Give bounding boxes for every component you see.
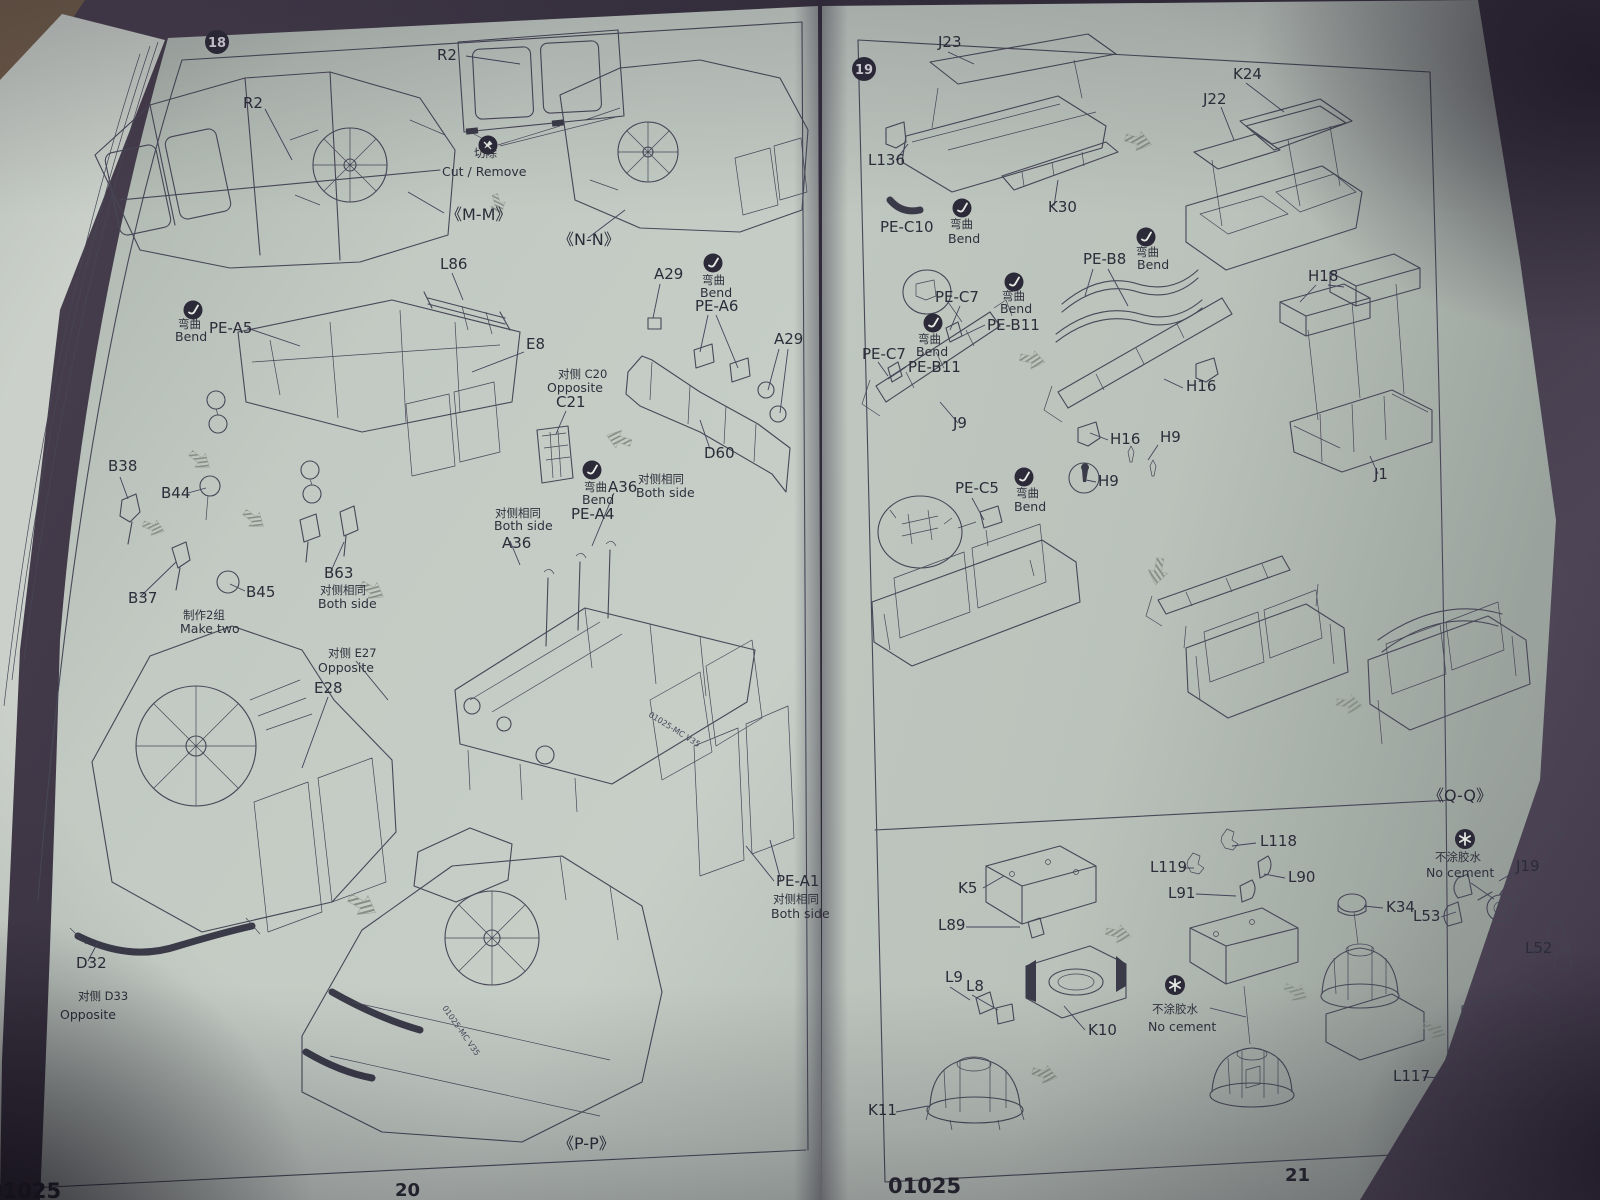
part-label-d32: D32 <box>76 954 107 972</box>
part-label-b44: B44 <box>161 484 190 502</box>
step-18-number: 18 <box>208 36 226 51</box>
page-fold-shadow <box>794 0 848 1200</box>
note-bend-en: Bend <box>175 329 207 344</box>
note-cut-remove-en: Cut / Remove <box>442 164 527 179</box>
view-label-pp: 《P-P》 <box>558 1134 615 1153</box>
part-label-pe-a6: PE-A6 <box>695 297 738 315</box>
photo-of-instruction-booklet: 18 19 R2 R2 切除 Cut / Remove 《M-M》 《N-N》 … <box>0 0 1600 1200</box>
note-bend-zh: 弯曲 <box>1016 486 1039 500</box>
note-bend-en: Bend <box>948 231 980 246</box>
bend-icon <box>583 461 602 480</box>
note-both-side-en: Both side <box>771 906 830 921</box>
page-number-21: 21 <box>1285 1165 1310 1186</box>
part-label-h9: H9 <box>1098 472 1119 490</box>
note-no-cement-zh: 不涂胶水 <box>1435 850 1481 864</box>
part-label-b45: B45 <box>246 583 275 601</box>
no-cement-icon <box>1165 975 1185 995</box>
part-label-j1: J1 <box>1373 465 1388 483</box>
view-label-mm: 《M-M》 <box>446 205 511 224</box>
part-label-l86: L86 <box>440 255 467 273</box>
part-label-pe-b11: PE-B11 <box>908 358 961 376</box>
part-label-pe-b11: PE-B11 <box>987 316 1040 334</box>
part-label-pe-c10: PE-C10 <box>880 218 934 236</box>
part-label-l8: L8 <box>966 977 984 995</box>
part-label-k24: K24 <box>1233 65 1262 83</box>
part-label-j19: J19 <box>1515 857 1540 875</box>
note-make-two-en: Make two <box>180 621 240 636</box>
note-cut-remove-zh: 切除 <box>474 146 497 160</box>
view-label-qq: 《Q-Q》 <box>1428 786 1492 805</box>
part-label-k30: K30 <box>1048 198 1077 216</box>
note-bend-en: Bend <box>1014 499 1046 514</box>
part-label-pe-a4: PE-A4 <box>571 505 614 523</box>
part-label-h9: H9 <box>1160 428 1181 446</box>
note-bend-en: Bend <box>1137 257 1169 272</box>
bend-icon <box>1137 228 1156 247</box>
part-label-h16: H16 <box>1186 377 1216 395</box>
note-opposite-c20-zh: 对侧 C20 <box>558 367 607 381</box>
note-both-side-en: Both side <box>636 485 695 500</box>
note-opposite-e27-zh: 对侧 E27 <box>328 646 377 660</box>
part-label-b63: B63 <box>324 564 353 582</box>
part-label-h18: H18 <box>1308 267 1338 285</box>
note-no-cement-zh: 不涂胶水 <box>1152 1002 1198 1016</box>
note-no-cement-en: No cement <box>1426 865 1494 880</box>
part-label-e28: E28 <box>314 679 343 697</box>
part-label-j9: J9 <box>952 414 967 432</box>
part-label-a36: A36 <box>502 534 531 552</box>
part-label-pe-c5: PE-C5 <box>955 479 999 497</box>
part-label-pe-a5: PE-A5 <box>209 319 252 337</box>
note-bend-en: Bend <box>916 344 948 359</box>
part-label-pe-c7: PE-C7 <box>862 345 906 363</box>
part-label-d60: D60 <box>704 444 735 462</box>
part-label-e8: E8 <box>526 335 545 353</box>
part-label-j23: J23 <box>937 33 962 51</box>
part-label-l117: L117 <box>1393 1067 1430 1085</box>
part-label-l89: L89 <box>938 916 965 934</box>
note-bend-en: Bend <box>1000 301 1032 316</box>
part-label-l90: L90 <box>1288 868 1315 886</box>
note-both-side-en: Both side <box>318 596 377 611</box>
part-label-k11: K11 <box>868 1101 897 1119</box>
part-label-l52: L52 <box>1525 939 1552 957</box>
bend-icon <box>1015 468 1034 487</box>
no-cement-icon <box>1455 829 1475 849</box>
note-make-two-zh: 制作2组 <box>183 608 225 622</box>
note-both-side-zh: 对侧相同 <box>638 472 684 486</box>
note-opposite-d33-zh: 对侧 D33 <box>78 989 128 1003</box>
part-label-k34: K34 <box>1386 898 1415 916</box>
step-18-badge: 18 <box>205 30 229 54</box>
part-label-k10: K10 <box>1088 1021 1117 1039</box>
note-no-cement-en: No cement <box>1148 1019 1216 1034</box>
bend-icon <box>704 254 723 273</box>
part-label-b38: B38 <box>108 457 137 475</box>
step-19-number: 19 <box>855 63 873 78</box>
booklet-graphic: 18 19 R2 R2 切除 Cut / Remove 《M-M》 《N-N》 … <box>0 0 1600 1200</box>
part-label-a29: A29 <box>654 265 683 283</box>
note-both-side-zh: 对侧相同 <box>320 583 366 597</box>
part-label-a36: A36 <box>608 478 637 496</box>
part-label-b37: B37 <box>128 589 157 607</box>
note-opposite-en: Opposite <box>318 660 374 675</box>
part-label-pe-a1: PE-A1 <box>776 872 819 890</box>
kit-code-right: 01025 <box>888 1174 961 1198</box>
part-label-k5: K5 <box>958 879 977 897</box>
part-label-r2: R2 <box>243 94 263 112</box>
part-label-l91: L91 <box>1168 884 1195 902</box>
bend-icon <box>953 199 972 218</box>
part-label-l9: L9 <box>945 968 963 986</box>
part-label-c21: C21 <box>556 393 586 411</box>
part-label-r2: R2 <box>437 46 457 64</box>
part-label-h16: H16 <box>1110 430 1140 448</box>
page-number-20: 20 <box>395 1180 420 1200</box>
note-both-side-zh: 对侧相同 <box>773 892 819 906</box>
part-label-l118: L118 <box>1260 832 1297 850</box>
part-label-a29: A29 <box>774 330 803 348</box>
kit-code-left: 01025 <box>0 1179 61 1200</box>
step-19-badge: 19 <box>852 57 876 81</box>
note-bend-zh: 弯曲 <box>950 217 973 231</box>
part-label-pe-b8: PE-B8 <box>1083 250 1126 268</box>
part-label-pe-c7: PE-C7 <box>935 288 979 306</box>
note-both-side-en: Both side <box>494 518 553 533</box>
part-label-l53: L53 <box>1413 907 1440 925</box>
note-opposite-en: Opposite <box>60 1007 116 1022</box>
bend-icon <box>924 314 943 333</box>
part-label-l136: L136 <box>868 151 905 169</box>
part-label-j22: J22 <box>1202 90 1227 108</box>
part-label-l119: L119 <box>1150 858 1187 876</box>
view-label-nn: 《N-N》 <box>558 230 620 249</box>
